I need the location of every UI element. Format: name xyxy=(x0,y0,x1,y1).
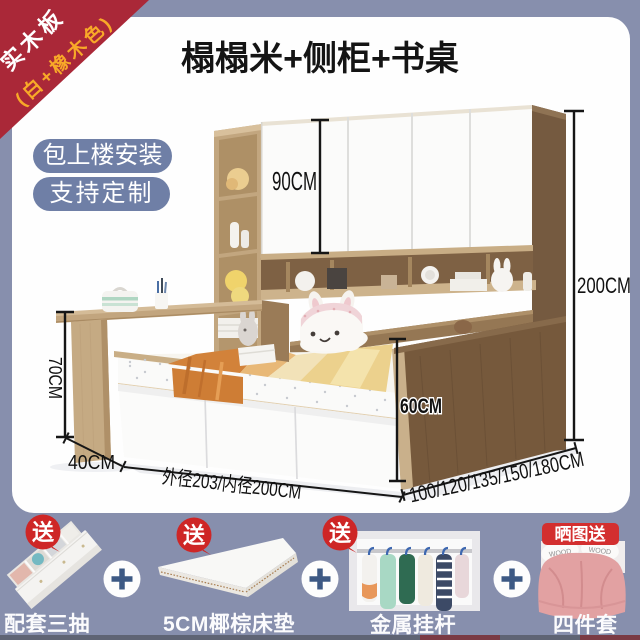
svg-text:晒图送: 晒图送 xyxy=(555,524,607,544)
svg-text:送: 送 xyxy=(329,521,351,546)
svg-text:送: 送 xyxy=(183,523,205,548)
svg-text:90CM: 90CM xyxy=(272,166,317,196)
svg-text:60CM: 60CM xyxy=(400,395,442,418)
svg-text:送: 送 xyxy=(32,520,54,545)
svg-text:70CM: 70CM xyxy=(45,357,65,399)
svg-text:200CM: 200CM xyxy=(577,273,631,298)
svg-text:40CM: 40CM xyxy=(68,452,115,474)
